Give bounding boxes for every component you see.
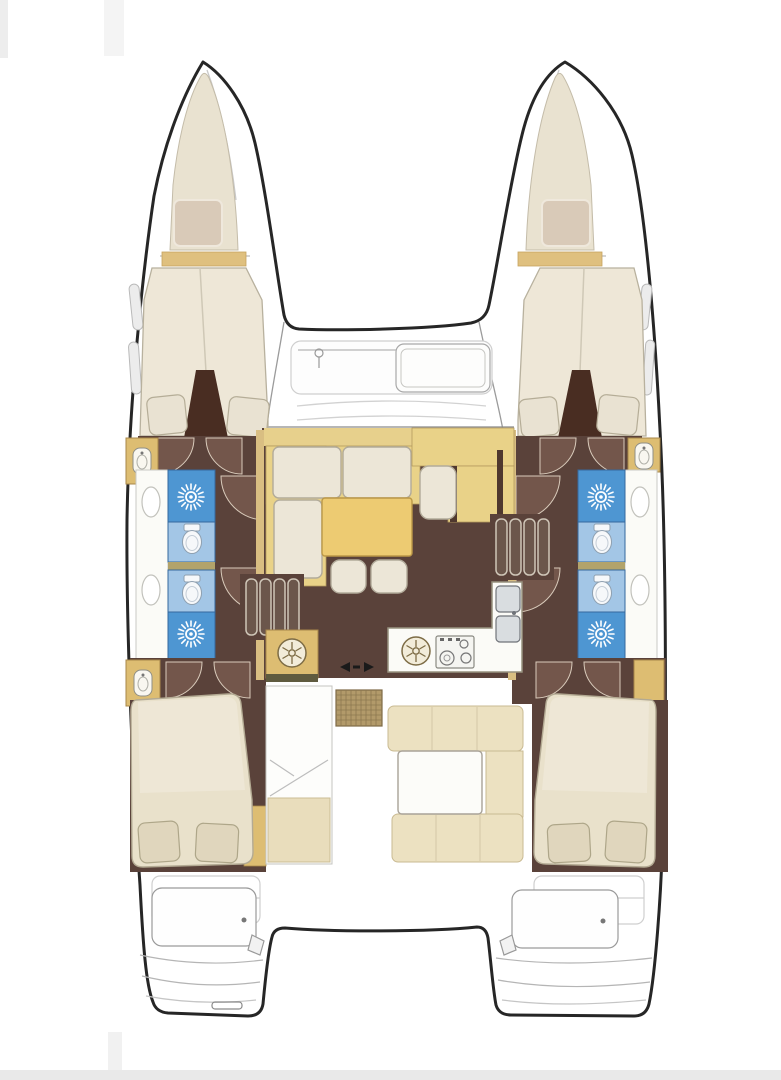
sink-icon — [631, 487, 649, 517]
floorplan-svg — [0, 0, 781, 1080]
toilet-icon — [593, 524, 612, 554]
port-bathroom-counter — [136, 470, 168, 666]
stove-icon — [436, 636, 474, 668]
bathroom-divider — [578, 562, 625, 570]
shower-icon — [588, 621, 614, 647]
starboard-bathroom-counter — [625, 470, 657, 666]
starboard-forward-cabin — [518, 268, 646, 438]
pillow — [605, 821, 648, 864]
port-aft-bathroom — [168, 570, 215, 660]
toilet-icon — [183, 575, 202, 605]
cockpit-port-module — [266, 686, 332, 864]
salon-table — [322, 498, 412, 556]
sofa-cushion — [343, 447, 411, 498]
shower-icon — [178, 621, 204, 647]
engine-hatch — [152, 888, 256, 946]
sink-icon — [142, 487, 160, 517]
bow-cushion — [174, 200, 222, 246]
floorplan-canvas — [0, 0, 781, 1080]
bow-cushion — [542, 200, 590, 246]
toilet-icon — [593, 575, 612, 605]
salon-wall-port — [256, 430, 264, 680]
starboard-aft-cabin — [532, 694, 668, 872]
nav-seat — [420, 466, 456, 519]
bow-shelf — [518, 252, 602, 266]
pillow — [138, 821, 181, 864]
bathroom-divider — [168, 562, 215, 570]
pillow — [146, 394, 188, 436]
bottom-band — [0, 1070, 781, 1080]
sofa-cushion — [274, 500, 322, 578]
port-forward-cabin — [140, 268, 270, 438]
shower-icon — [588, 484, 614, 510]
pillow — [195, 823, 239, 863]
pillow — [596, 394, 640, 436]
toilet-icon — [183, 524, 202, 554]
starboard-forward-bathroom — [578, 470, 625, 570]
port-aft-cabin — [130, 694, 266, 872]
washing-machine-icon — [278, 639, 306, 667]
washbasin-icon — [134, 670, 152, 696]
port-forward-bathroom — [168, 470, 215, 570]
sofa-cushion — [273, 447, 341, 498]
washing-machine-cabinet — [266, 630, 318, 682]
sink-icon — [631, 575, 649, 605]
bow-shelf — [162, 252, 246, 266]
pillow — [518, 396, 560, 438]
washbasin-icon — [635, 443, 653, 469]
starboard-companionway — [490, 514, 554, 580]
sink-icon — [142, 575, 160, 605]
nav-desk-side — [497, 450, 503, 516]
shower-icon — [178, 484, 204, 510]
cockpit-table — [398, 751, 482, 814]
teak-grating-icon — [336, 690, 382, 726]
forward-cockpit-seat — [396, 344, 490, 392]
forward-cockpit — [291, 341, 492, 394]
ottoman — [371, 560, 407, 593]
round-sink-icon — [402, 637, 430, 665]
cockpit-side-cushion — [268, 798, 330, 862]
pillow — [547, 823, 591, 863]
cabin-cabinet — [634, 660, 664, 702]
ottoman — [331, 560, 366, 593]
nav-desk — [448, 466, 514, 522]
starboard-aft-bathroom — [578, 570, 625, 660]
